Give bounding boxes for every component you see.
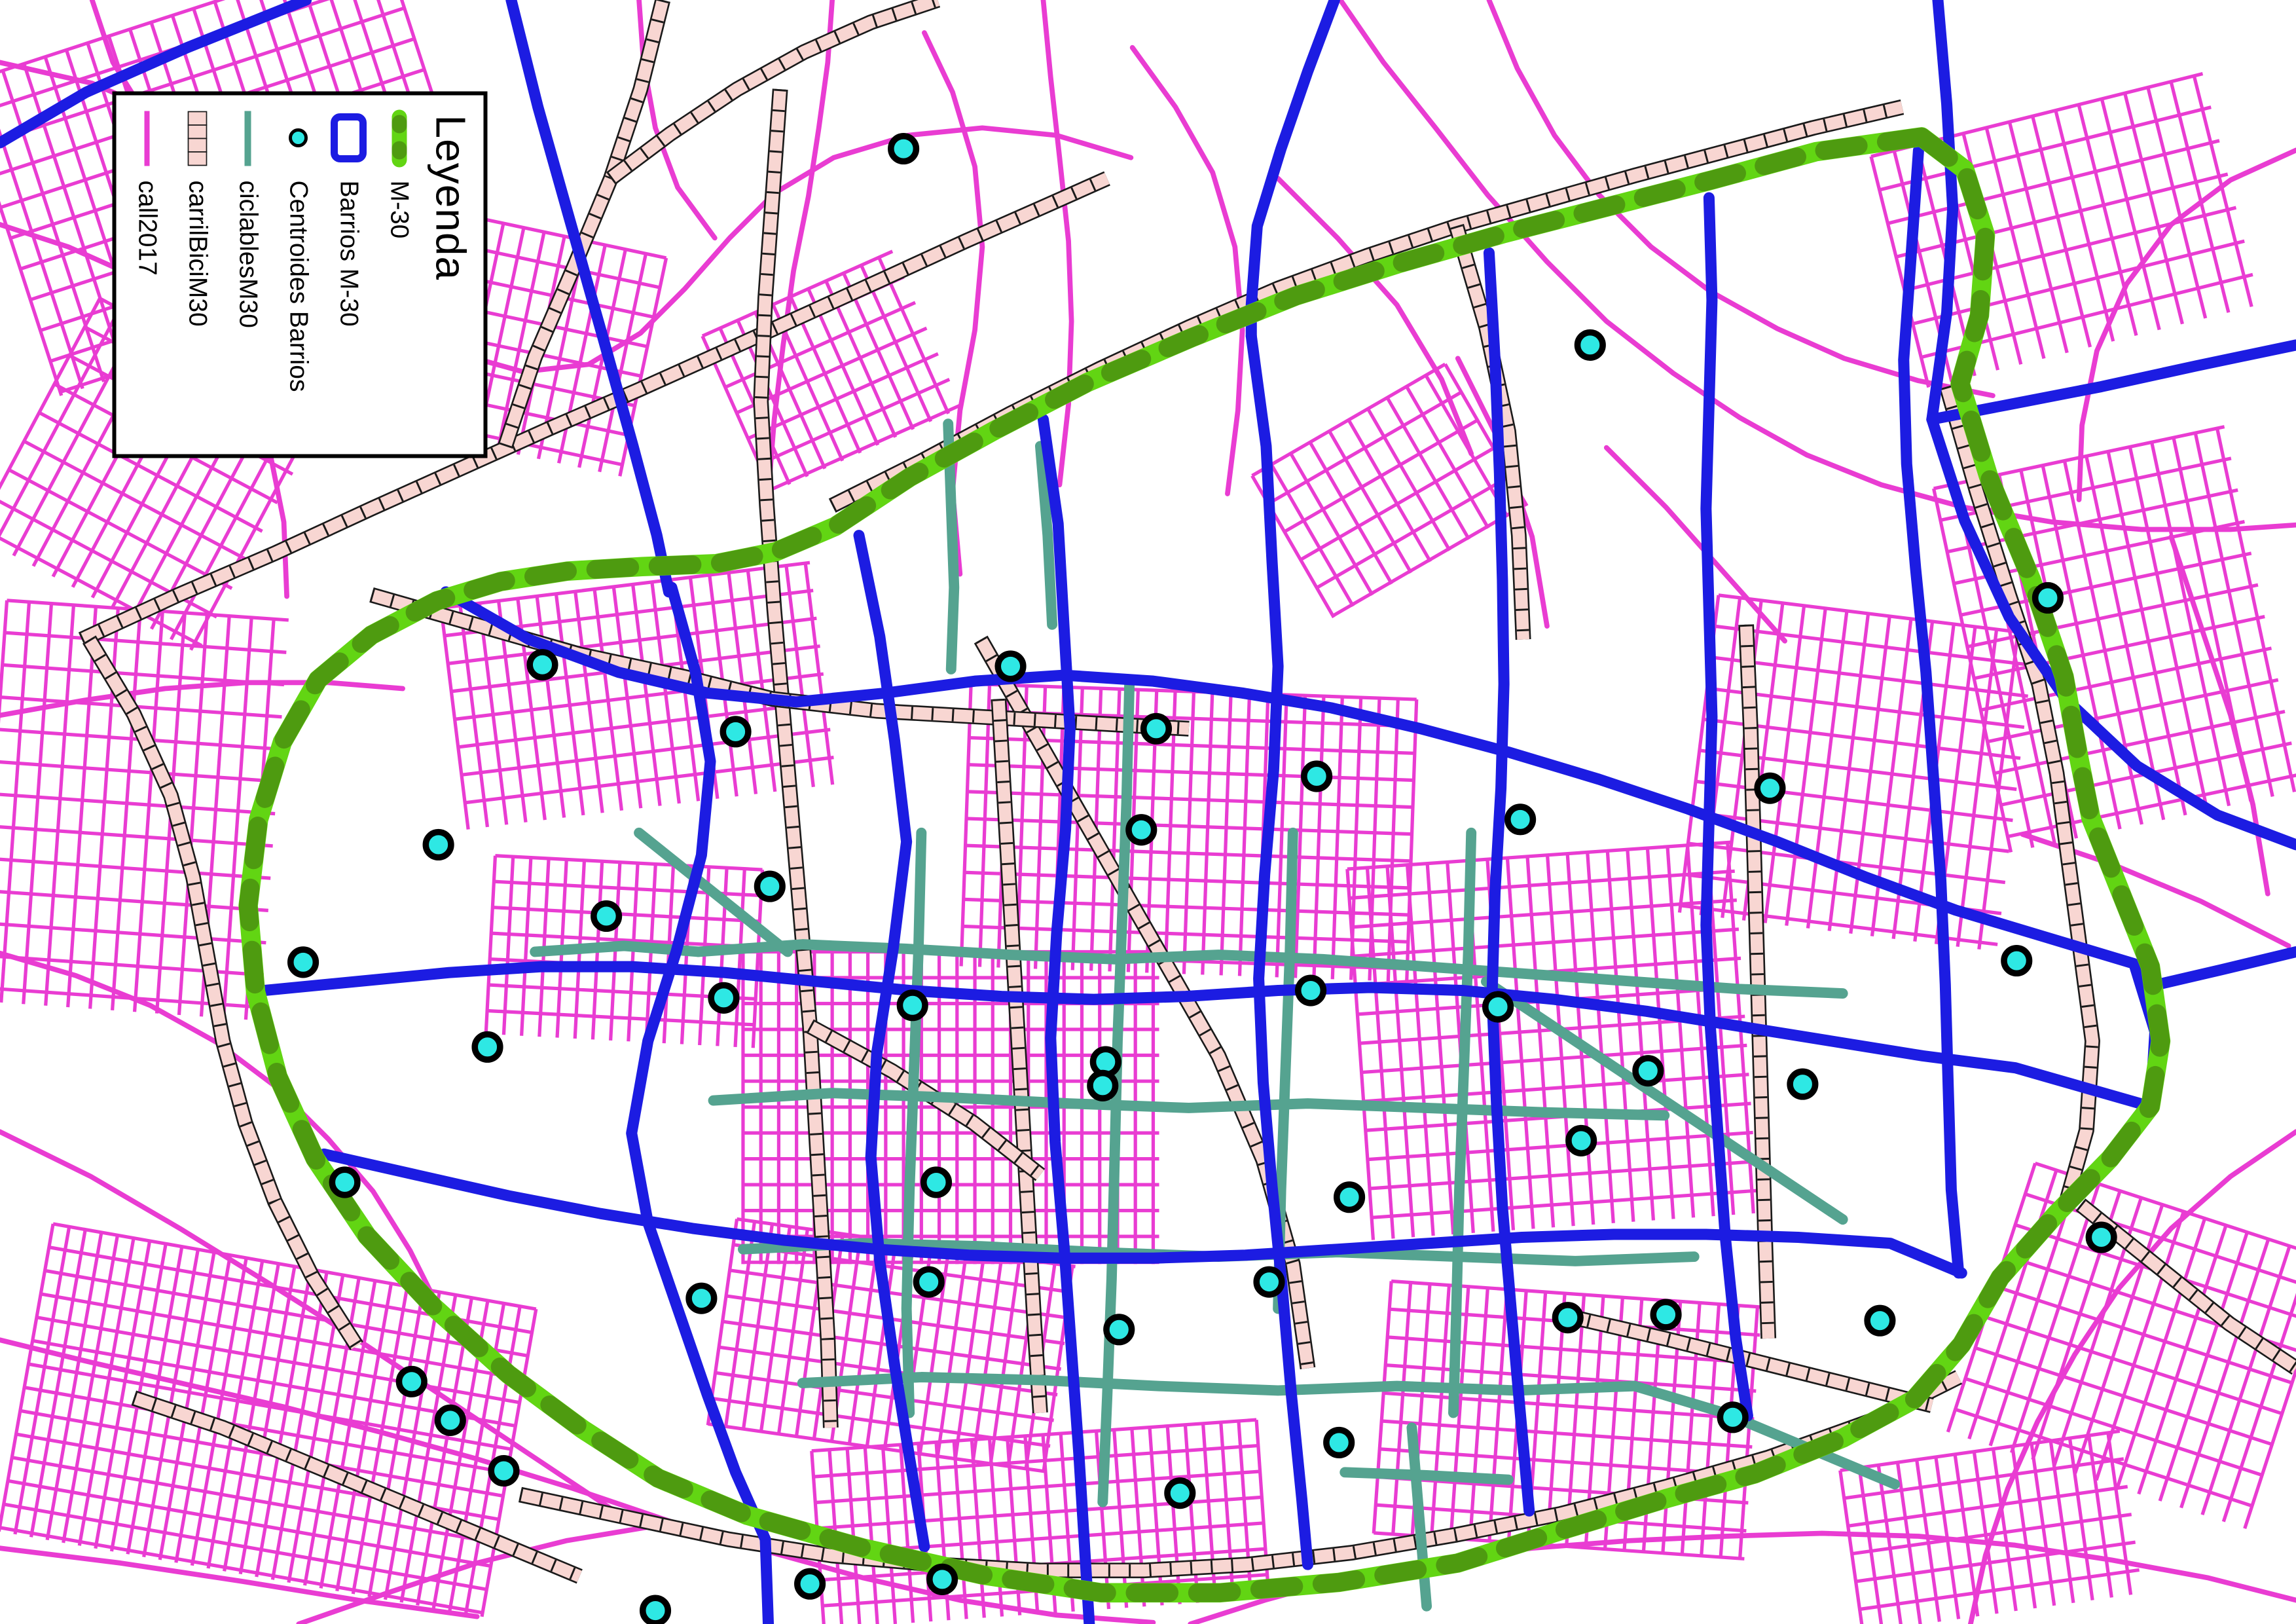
centroid-dot (689, 1285, 714, 1311)
legend-item-carrilbicim30: carrilBiciM30 (173, 96, 223, 454)
centroid-dot (643, 1598, 668, 1623)
ciclables-line-symbol (229, 98, 267, 181)
centroid-dot (1129, 817, 1154, 843)
centroid-dot (930, 1567, 955, 1593)
centroid-dot (291, 950, 316, 975)
centroid-dot (1326, 1430, 1352, 1456)
centroid-dot (399, 1369, 424, 1395)
centroid-dot (1144, 716, 1169, 742)
centroid-dot (594, 904, 619, 929)
centroid-dot (332, 1170, 357, 1195)
centroid-dot (491, 1458, 517, 1484)
legend-label: call2017 (133, 181, 162, 276)
centroid-dot (1635, 1058, 1661, 1084)
centroid-dot (1653, 1302, 1679, 1327)
centroid-dot-symbol (280, 98, 318, 181)
legend-item-ciclablesm30: ciclablesM30 (223, 96, 274, 454)
centroid-dot (891, 136, 917, 162)
legend-label: M-30 (385, 181, 414, 239)
centroid-dot (530, 652, 555, 678)
legend-title: Leyenda (425, 96, 477, 454)
centroid-dot (757, 874, 783, 899)
legend-label: carrilBiciM30 (183, 181, 212, 327)
centroid-dot (1555, 1305, 1580, 1331)
centroid-dot (1167, 1481, 1193, 1506)
centroid-dot (998, 654, 1023, 679)
centroid-dot (2004, 948, 2030, 974)
centroid-dot (2088, 1225, 2114, 1250)
centroid-dot (2035, 585, 2061, 611)
centroid-dot (1508, 807, 1533, 832)
centroid-dot (1298, 978, 1324, 1003)
legend-label: Barrios M-30 (335, 181, 363, 327)
centroid-dot (426, 832, 451, 858)
centroid-dot (916, 1269, 941, 1295)
centroid-dot (1720, 1405, 1745, 1430)
legend-item-call2017: call2017 (122, 96, 173, 454)
centroid-dot (797, 1571, 823, 1596)
map-page: Leyenda M-30Barrios M-30Centroides Barri… (0, 0, 2296, 1624)
centroid-dot (711, 986, 737, 1011)
carril-bici-blocks-symbol (179, 98, 217, 181)
legend-item-m-30: M-30 (374, 96, 425, 454)
centroid-dot (1106, 1317, 1132, 1342)
barrios-outline-symbol (330, 98, 368, 181)
centroid-dot (1569, 1128, 1594, 1154)
m30-dashed-line-symbol (380, 98, 418, 181)
centroid-dot (1256, 1269, 1282, 1295)
centroid-dot (723, 719, 748, 745)
centroid-dot (1337, 1185, 1362, 1210)
centroid-dot (1485, 994, 1511, 1020)
centroid-dot (437, 1408, 463, 1433)
legend-box: Leyenda M-30Barrios M-30Centroides Barri… (113, 92, 488, 458)
centroid-dot (475, 1035, 500, 1060)
centroid-dot (1790, 1071, 1815, 1097)
centroid-dot (1757, 775, 1783, 801)
legend-item-barrios-m-30: Barrios M-30 (324, 96, 374, 454)
legend-items: M-30Barrios M-30Centroides Barriosciclab… (122, 96, 425, 454)
centroid-dot (1304, 764, 1330, 789)
centroid-dot (1090, 1073, 1116, 1099)
centroid-dot (924, 1170, 949, 1195)
centroid-dot (900, 993, 925, 1018)
centroid-dot (1867, 1308, 1893, 1333)
legend-label: Centroides Barrios (284, 181, 313, 392)
legend-label: ciclablesM30 (234, 181, 263, 328)
legend-item-centroides-barrios: Centroides Barrios (274, 96, 324, 454)
call2017-line-symbol (128, 98, 166, 181)
centroid-dot (1578, 333, 1603, 358)
